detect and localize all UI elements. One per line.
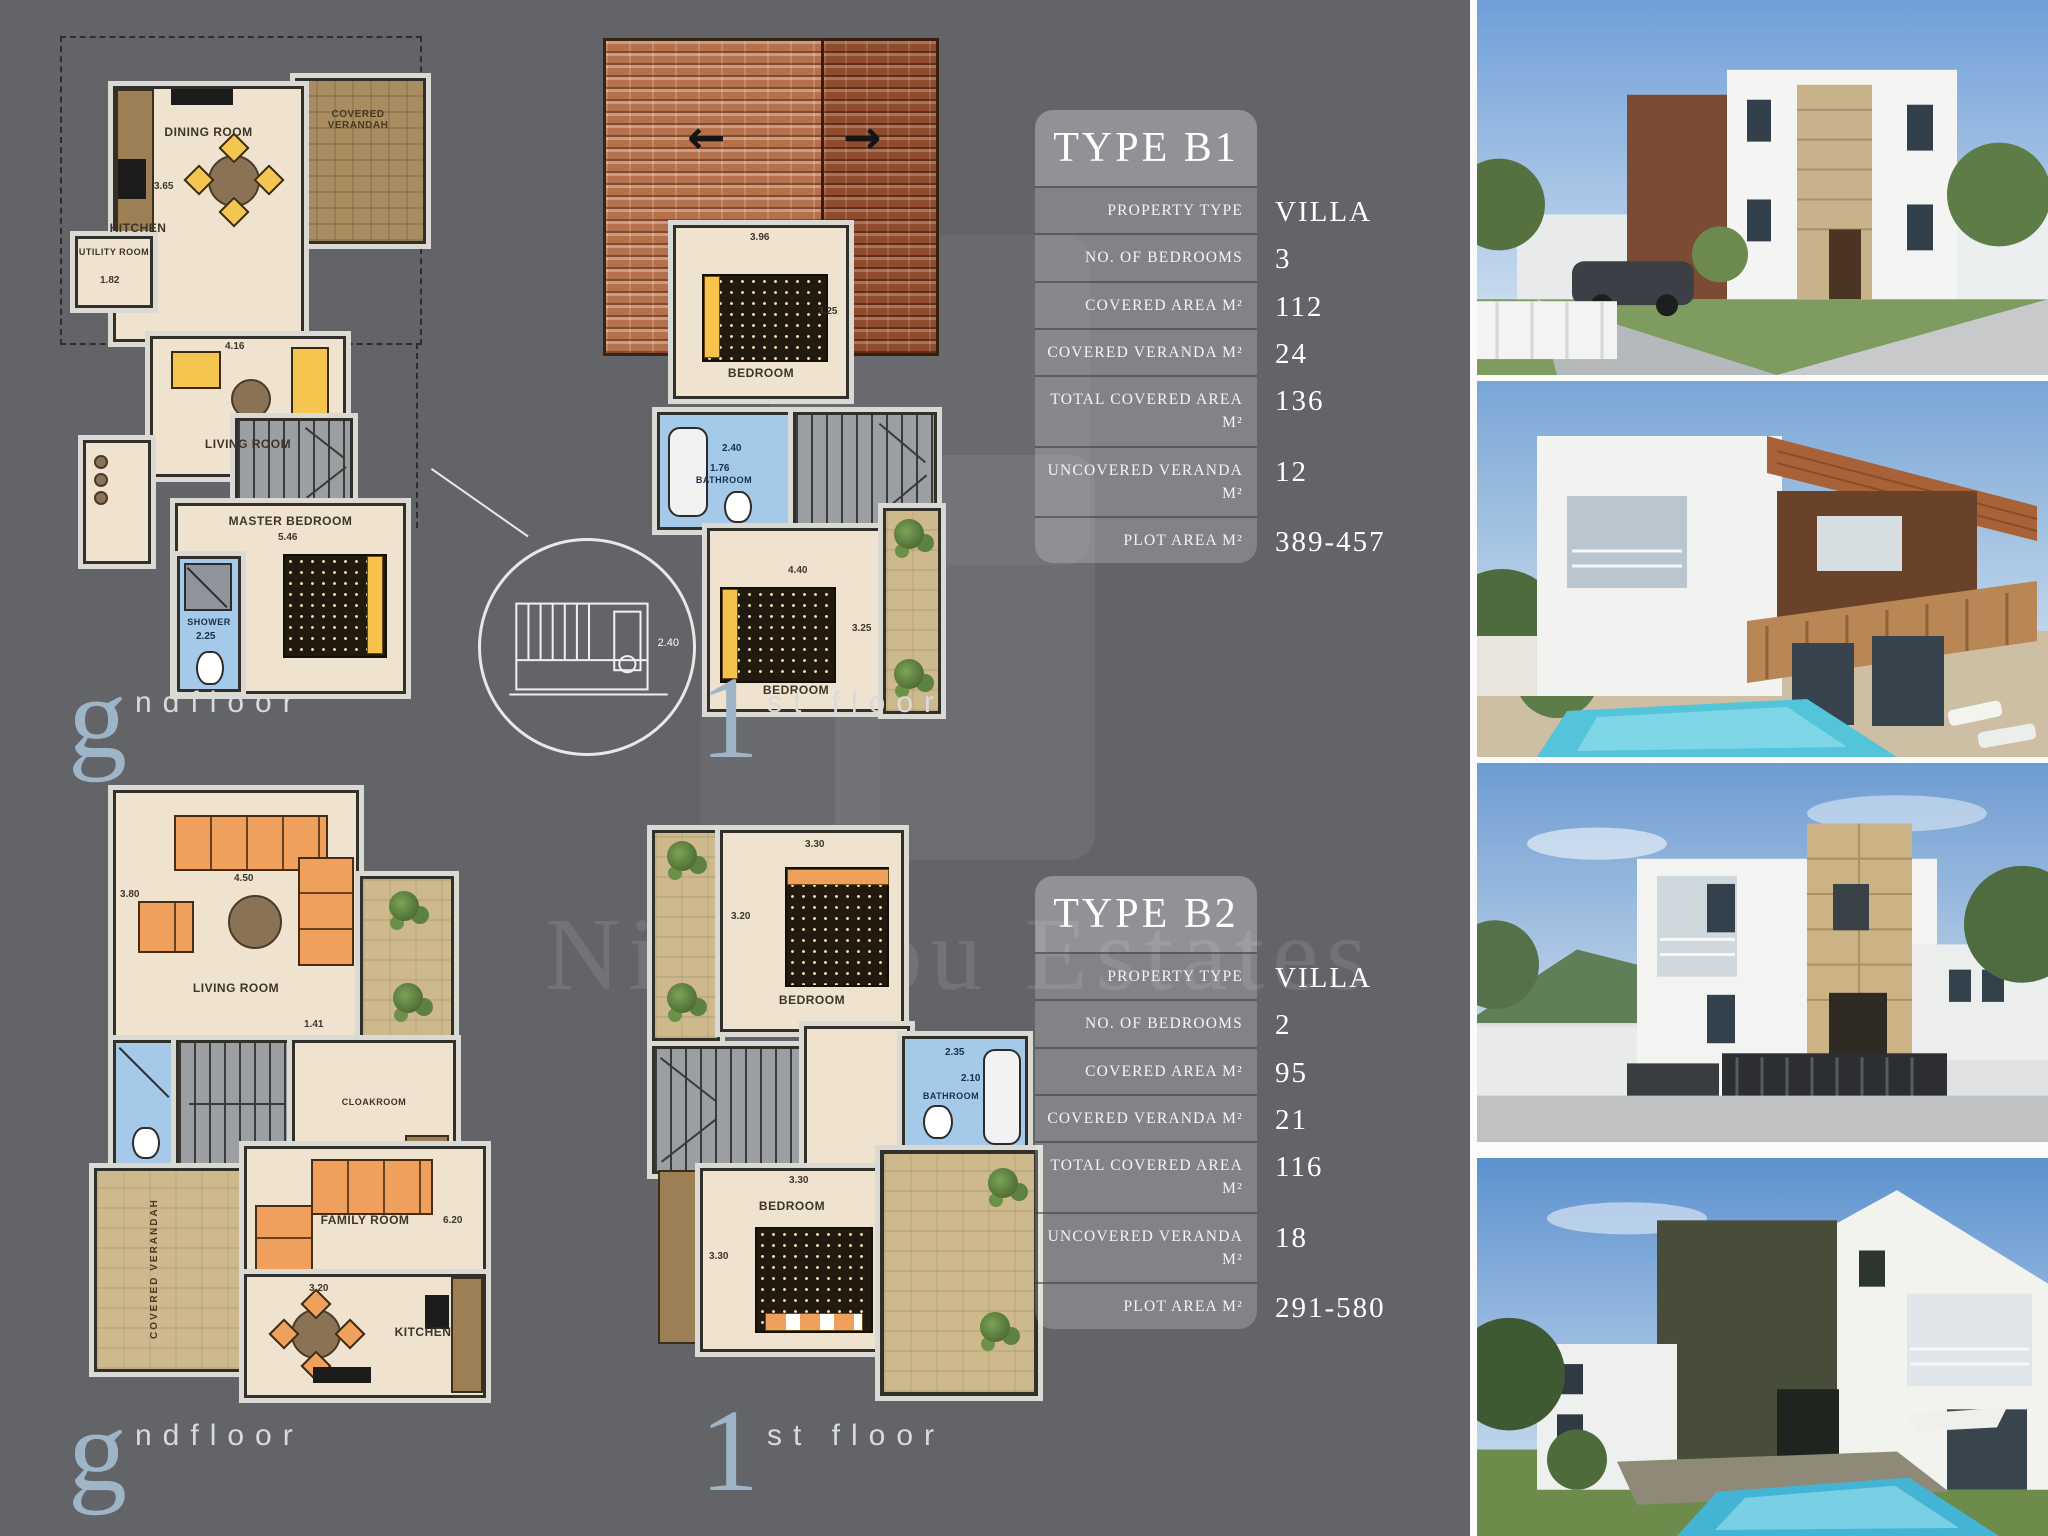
stair-rail-line	[661, 1118, 717, 1163]
dimension-label: 3.25	[852, 623, 871, 634]
appliance-shape	[171, 89, 233, 105]
room-label: SHOWER	[180, 617, 238, 627]
plant-shape	[393, 983, 423, 1013]
room-label: BEDROOM	[676, 366, 846, 380]
spec-row: NO. OF BEDROOMS2	[1035, 999, 1467, 1046]
spec-row: NO. OF BEDROOMS3	[1035, 233, 1467, 280]
bed-shape	[785, 867, 889, 987]
spec-row: PLOT AREA M²291-580	[1035, 1282, 1467, 1329]
bed-pillow-shape	[367, 556, 383, 654]
room-label: COVERED VERANDAH	[308, 109, 408, 131]
table-title: TYPE B2	[1035, 876, 1257, 952]
spec-label: UNCOVERED VERANDA M²	[1035, 446, 1257, 517]
shower-shape	[184, 563, 232, 611]
floor-label-b2-ground: g ndfloor	[68, 1405, 304, 1497]
dimension-label: 1.41	[304, 1019, 323, 1030]
floor-label-text: st floor	[767, 686, 945, 720]
photo-villa-render-2	[1477, 381, 2048, 757]
spec-row: COVERED VERANDA M²24	[1035, 328, 1467, 375]
appliance-shape	[313, 1367, 371, 1383]
room-label: BEDROOM	[703, 1199, 881, 1213]
room-label: LIVING ROOM	[116, 981, 356, 995]
plant-shape	[667, 983, 697, 1013]
room-shower-wc	[113, 1040, 177, 1168]
bathtub-shape	[668, 427, 708, 517]
floor-label-initial: g	[68, 1405, 127, 1497]
spec-value: 95	[1257, 1047, 1308, 1090]
bed-shape	[702, 274, 828, 362]
photo-villa-render-4	[1477, 1158, 2048, 1536]
floor-label-text: ndfloor	[135, 1419, 304, 1453]
wardrobe-shape	[658, 1170, 702, 1344]
spec-row: UNCOVERED VERANDA M²18	[1035, 1212, 1467, 1283]
spec-row: COVERED VERANDA M²21	[1035, 1094, 1467, 1141]
floor-label-initial: g	[68, 672, 127, 764]
dimension-label: 4.50	[234, 873, 253, 884]
floor-label-b2-first: 1 st floor	[700, 1405, 945, 1497]
shower-line	[187, 567, 228, 608]
room-utility: UTILITY ROOM 1.82	[75, 236, 153, 308]
room-bathroom: 2.35 2.10 BATHROOM	[902, 1036, 1028, 1154]
stair-rail-line	[660, 1057, 716, 1102]
spec-label: PLOT AREA M²	[1035, 516, 1257, 563]
planter-shape	[94, 473, 108, 487]
spec-label: TOTAL COVERED AREA M²	[1035, 375, 1257, 446]
spec-row: COVERED AREA M²112	[1035, 281, 1467, 328]
dimension-label: 1.82	[100, 275, 119, 286]
table-rows: PROPERTY TYPEVILLANO. OF BEDROOMS3COVERE…	[1035, 186, 1467, 563]
dimension-label: 3.25	[818, 306, 837, 317]
toilet-shape	[923, 1105, 953, 1139]
room-label: BATHROOM	[660, 475, 788, 485]
plant-shape	[894, 519, 924, 549]
dimension-label: 2.40	[722, 443, 741, 454]
room-bedroom-1: 3.96 3.25 BEDROOM	[673, 225, 849, 399]
brochure-page: Nicolaou Estates COVERED VERANDAH DINING…	[0, 0, 2048, 1536]
room-covered-verandah: COVERED VERANDAH	[295, 78, 426, 244]
spec-value: 389-457	[1257, 516, 1386, 559]
coffee-table-shape	[231, 379, 271, 419]
chair-shape	[253, 164, 284, 195]
toilet-shape	[132, 1127, 160, 1159]
dimension-label: 3.65	[154, 181, 173, 192]
stove-shape	[118, 159, 146, 199]
side-veranda	[360, 876, 454, 1044]
roof-slope-arrow-icon: ←	[687, 110, 726, 164]
dimension-label: 5.46	[278, 532, 297, 543]
spec-label: NO. OF BEDROOMS	[1035, 233, 1257, 280]
room-bedroom-1: 3.30 3.20 BEDROOM	[720, 830, 904, 1032]
stairs	[235, 418, 353, 512]
plant-shape	[988, 1168, 1018, 1198]
room-label: UTILITY ROOM	[78, 247, 150, 257]
dimension-label: 3.30	[789, 1175, 808, 1186]
plan-b1-ground-floor: COVERED VERANDAH DINING ROOM KITCHEN 3.6…	[55, 28, 435, 708]
floor-label-initial: 1	[700, 1405, 759, 1497]
room-living: 4.50 LIVING ROOM 3.80 1.41	[113, 790, 359, 1041]
bed-pillow-shape	[787, 869, 889, 885]
spec-row: PROPERTY TYPEVILLA	[1035, 186, 1467, 233]
room-label: MASTER BEDROOM	[178, 514, 403, 528]
room-label: BATHROOM	[891, 1091, 1011, 1101]
spec-label: PLOT AREA M²	[1035, 1282, 1257, 1329]
spec-value: 12	[1257, 446, 1308, 489]
floor-label-b1-ground: g ndfloor	[68, 672, 304, 764]
room-label: LIVING ROOM	[153, 437, 343, 451]
plan-b2-first-floor: 3.30 3.20 BEDROOM 2.35 2.10 BATHROOM 3.3…	[640, 818, 1040, 1418]
spec-row: UNCOVERED VERANDA M²12	[1035, 446, 1467, 517]
dimension-label: 2.40	[658, 637, 679, 649]
spec-value: 18	[1257, 1212, 1308, 1255]
bed-pillow-shape	[704, 276, 720, 358]
dimension-label: 4.16	[225, 341, 244, 352]
plan-b2-ground-floor: 4.50 LIVING ROOM 3.80 1.41 CLOAKROOM COV…	[88, 778, 488, 1403]
table-title: TYPE B1	[1035, 110, 1257, 186]
dimension-label: 3.20	[309, 1283, 328, 1294]
room-family: FAMILY ROOM 6.20	[244, 1146, 486, 1280]
stairs	[652, 1046, 810, 1174]
spec-value: 2	[1257, 999, 1292, 1042]
floor-label-initial: 1	[700, 672, 759, 764]
photo-villa-render-1	[1477, 0, 2048, 375]
room-label: BEDROOM	[723, 993, 901, 1007]
stair-rail-line	[879, 423, 926, 463]
room-label: DINING ROOM	[116, 125, 301, 139]
spec-row: TOTAL COVERED AREA M²116	[1035, 1141, 1467, 1212]
dimension-label: 3.20	[731, 911, 750, 922]
stair-rail-line	[306, 466, 347, 498]
spec-value: 24	[1257, 328, 1308, 371]
room-bathroom: 2.40 1.76 BATHROOM	[657, 412, 791, 530]
room-bedroom-2: 3.30 3.30 BEDROOM	[700, 1168, 884, 1352]
stair-detail-callout: 2.40	[478, 538, 696, 756]
uncovered-veranda	[880, 1150, 1038, 1396]
sofa-shape	[298, 857, 354, 966]
dimension-label: 6.20	[443, 1215, 462, 1226]
room-label: COVERED VERANDAH	[149, 1189, 160, 1349]
spec-label: COVERED VERANDA M²	[1035, 1094, 1257, 1141]
armchair-shape	[138, 901, 194, 953]
spec-label: COVERED AREA M²	[1035, 1047, 1257, 1094]
dimension-label: 3.30	[805, 839, 824, 850]
spec-value: VILLA	[1257, 186, 1372, 229]
coffee-table-shape	[228, 895, 282, 949]
plant-shape	[389, 891, 419, 921]
stair-rail-line	[189, 1103, 285, 1105]
floor-label-text: st floor	[767, 1419, 945, 1453]
toilet-shape	[724, 491, 752, 523]
dimension-label: 1.76	[710, 463, 729, 474]
spec-value: 291-580	[1257, 1282, 1386, 1325]
spec-label: UNCOVERED VERANDA M²	[1035, 1212, 1257, 1283]
spec-label: TOTAL COVERED AREA M²	[1035, 1141, 1257, 1212]
spec-row: TOTAL COVERED AREA M²136	[1035, 375, 1467, 446]
planter-shape	[94, 455, 108, 469]
spec-label: COVERED AREA M²	[1035, 281, 1257, 328]
spec-value: 3	[1257, 233, 1292, 276]
dimension-label: 3.30	[709, 1251, 728, 1262]
dimension-label: 4.40	[788, 565, 807, 576]
spec-label: PROPERTY TYPE	[1035, 186, 1257, 233]
side-veranda	[83, 440, 151, 564]
villa-render-1	[1477, 0, 2048, 375]
spec-value: 112	[1257, 281, 1323, 324]
plot-boundary-dashed	[416, 343, 418, 528]
spec-row: COVERED AREA M²95	[1035, 1047, 1467, 1094]
shower-line	[119, 1047, 170, 1098]
villa-render-2	[1477, 381, 2048, 757]
dimension-label: 3.80	[120, 889, 139, 900]
room-label: KITCHEN	[88, 221, 188, 235]
floor-label-b1-first: 1 st floor	[700, 672, 945, 764]
room-label: CLOAKROOM	[295, 1097, 453, 1107]
stove-shape	[425, 1295, 449, 1329]
planter-shape	[94, 491, 108, 505]
dimension-label: 3.96	[750, 232, 769, 243]
room-covered-verandah: COVERED VERANDAH	[94, 1168, 248, 1372]
room-label: KITCHEN	[305, 1325, 541, 1339]
dimension-label: 2.10	[961, 1073, 980, 1084]
dimension-label: 2.35	[945, 1047, 964, 1058]
spec-value: VILLA	[1257, 952, 1372, 995]
bed-pillow-shape	[765, 1313, 863, 1331]
callout-leader-line	[431, 468, 529, 537]
spec-label: COVERED VERANDA M²	[1035, 328, 1257, 375]
dimension-label: 2.25	[196, 631, 215, 642]
spec-table-type-b1: TYPE B1 PROPERTY TYPEVILLANO. OF BEDROOM…	[1035, 110, 1467, 563]
sofa-shape	[171, 351, 221, 389]
room-kitchen: 3.20 KITCHEN	[244, 1274, 486, 1398]
plant-shape	[980, 1312, 1010, 1342]
bed-shape	[755, 1227, 873, 1333]
spec-table-type-b2: TYPE B2 PROPERTY TYPEVILLANO. OF BEDROOM…	[1035, 876, 1467, 1329]
spec-row: PLOT AREA M²389-457	[1035, 516, 1467, 563]
spec-label: NO. OF BEDROOMS	[1035, 999, 1257, 1046]
villa-render-3	[1477, 763, 2048, 1142]
sofa-shape	[311, 1159, 433, 1215]
spec-label: PROPERTY TYPE	[1035, 952, 1257, 999]
plant-shape	[667, 841, 697, 871]
floor-label-text: ndfloor	[135, 686, 304, 720]
photo-villa-render-3	[1477, 763, 2048, 1142]
photo-column	[1470, 0, 2048, 1536]
bed-shape	[283, 554, 387, 658]
villa-render-4	[1477, 1158, 2048, 1536]
spec-value: 136	[1257, 375, 1325, 418]
spec-row: PROPERTY TYPEVILLA	[1035, 952, 1467, 999]
side-veranda	[652, 830, 720, 1041]
spec-value: 116	[1257, 1141, 1323, 1184]
table-rows: PROPERTY TYPEVILLANO. OF BEDROOMS2COVERE…	[1035, 952, 1467, 1329]
roof-slope-arrow-icon: →	[843, 110, 882, 164]
spec-value: 21	[1257, 1094, 1308, 1137]
